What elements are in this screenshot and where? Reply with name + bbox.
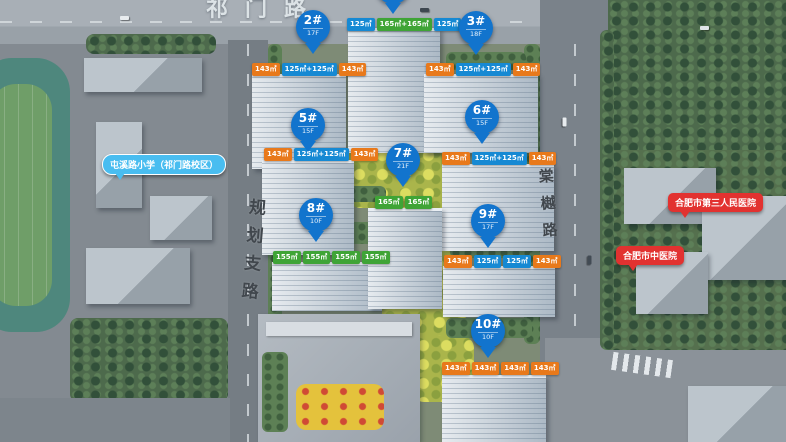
poi-bubble-school[interactable]: 屯溪路小学（祁门路校区） [102,154,226,175]
building-marker-5[interactable]: 5# 15F [291,108,325,142]
unit-tag: 143㎡ [252,63,280,76]
car [700,26,709,30]
unit-tags-building-2: 143㎡ 125㎡+125㎡ 143㎡ [251,63,367,76]
unit-tag: 143㎡ [501,362,529,375]
lowrise-building-8 [272,262,382,311]
building-marker-10[interactable]: 10# 10F [471,314,505,348]
unit-tag: 143㎡ [426,63,454,76]
car [120,16,129,20]
unit-tag: 125㎡ [347,18,375,31]
building-floors: 21F [393,161,413,170]
building-number: 5# [291,108,325,126]
building-floors: 17F [303,28,323,37]
unit-tags-building-6: 143㎡ 125㎡+125㎡ 143㎡ [441,152,557,165]
building-marker-8[interactable]: 8# 10F [299,198,333,232]
building-right-south [688,386,786,442]
unit-tags-building-5: 143㎡ 125㎡+125㎡ 143㎡ [263,148,379,161]
unit-tag: 155㎡ [273,251,301,264]
car [588,256,592,265]
forest-right-north [608,0,786,160]
unit-tag: 143㎡ [351,148,379,161]
unit-tag: 143㎡ [444,255,472,268]
school-building [84,58,202,92]
building-floors: 10F [478,332,498,341]
building-floors: 10F [306,216,326,225]
unit-tags-building-8: 155㎡ 155㎡ 155㎡ 155㎡ [272,251,391,264]
trees-kindergarten [262,352,288,432]
unit-tag: 125㎡+125㎡ [472,152,527,165]
unit-tag: 143㎡ [529,152,557,165]
building-floors: 15F [472,118,492,127]
building-marker-6[interactable]: 6# 15F [465,100,499,134]
building-marker-9[interactable]: 9# 17F [471,204,505,238]
unit-tag: 143㎡ [531,362,559,375]
unit-tag: 125㎡+125㎡ [456,63,511,76]
road-bottom-left [0,398,230,442]
unit-tag: 143㎡ [339,63,367,76]
building-marker-3[interactable]: 3# 18F [459,11,493,45]
building-number: 3# [459,11,493,29]
unit-tag: 143㎡ [513,63,541,76]
unit-tags-building-7: 165㎡ 165㎡ [374,196,433,209]
building-floors: 18F [466,29,486,38]
unit-tag: 143㎡ [442,152,470,165]
unit-tag: 125㎡ [474,255,502,268]
school-building [150,196,212,240]
building-number: 2# [296,10,330,28]
unit-tag: 143㎡ [533,255,561,268]
car [420,8,429,12]
unit-tag: 125㎡ [503,255,531,268]
school-building [86,248,190,304]
unit-tag: 165㎡+165㎡ [377,18,432,31]
car [563,118,567,127]
unit-tag: 165㎡ [405,196,433,209]
building-marker-7[interactable]: 7# 21F [386,143,420,177]
unit-tag: 165㎡ [375,196,403,209]
unit-tag: 125㎡ [434,18,462,31]
road-right-lane-line [574,44,576,344]
unit-tag: 155㎡ [362,251,390,264]
poi-bubble-hospital-3rd-people[interactable]: 合肥市第三人民医院 [668,193,763,212]
unit-tag: 143㎡ [442,362,470,375]
trees-road-east-edge [600,30,614,350]
trees-school-north [86,34,216,54]
site-plan-render: 祁门路 规划支路 棠樾路 125㎡ 165㎡+165㎡ 125㎡ 143㎡ 12… [0,0,786,442]
tower-building-9 [443,266,555,317]
unit-tags-building-9: 143㎡ 125㎡ 125㎡ 143㎡ [443,255,562,268]
kindergarten-playground [296,384,384,430]
kindergarten-roof [266,322,412,336]
building-number: 7# [386,143,420,161]
building-floors: 17F [478,222,498,231]
building-number: 10# [471,314,505,332]
unit-tag: 125㎡+125㎡ [282,63,337,76]
unit-tag: 155㎡ [332,251,360,264]
unit-tags-building-3: 143㎡ 125㎡+125㎡ 143㎡ [425,63,541,76]
building-number: 6# [465,100,499,118]
unit-tags-building-10: 143㎡ 143㎡ 143㎡ 143㎡ [441,362,560,375]
unit-tags-building-1: 125㎡ 165㎡+165㎡ 125㎡ [346,18,462,31]
building-marker-2[interactable]: 2# 17F [296,10,330,44]
unit-tag: 143㎡ [264,148,292,161]
unit-tag: 143㎡ [472,362,500,375]
tower-building-10 [442,375,546,442]
unit-tag: 155㎡ [303,251,331,264]
building-number: 9# [471,204,505,222]
trees-school-south [70,318,228,402]
building-floors: 15F [298,126,318,135]
sports-field [0,84,52,306]
poi-bubble-hospital-tcm[interactable]: 合肥市中医院 [616,246,684,265]
building-number: 8# [299,198,333,216]
